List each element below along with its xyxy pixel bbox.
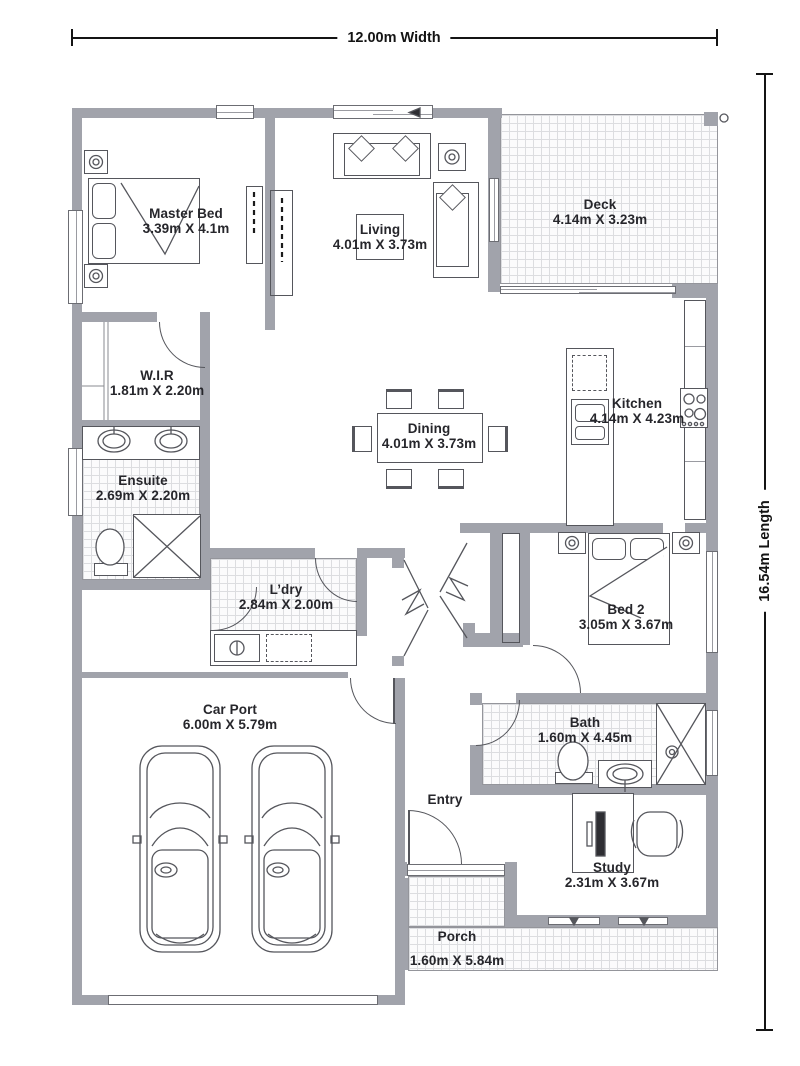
wall [505,915,718,927]
room-name: Living [333,222,427,237]
wall [392,656,404,666]
nightstand [84,264,108,288]
washer-space [266,634,312,662]
room-label-carport: Car Port 6.00m X 5.79m [183,702,277,733]
room-name: Bed 2 [579,602,673,617]
window [216,105,254,119]
wall [400,878,408,970]
shelving [82,322,108,420]
toilet-tank [555,772,593,784]
room-dims: 1.81m X 2.20m [110,383,204,398]
chair [488,426,508,452]
wall [516,693,718,703]
room-label-entry: Entry [427,792,462,807]
nightstand [84,150,108,174]
room-dims: 4.01m X 3.73m [333,237,427,252]
desk-chair-icon [631,812,682,856]
room-label-master-bed: Master Bed 3.39m X 4.1m [143,206,230,237]
wall [395,862,407,876]
nightstand [672,532,700,554]
door-arc [159,322,205,368]
sofa [333,133,431,179]
window [68,448,83,516]
door-leaf [408,810,410,864]
room-dims: 2.31m X 3.67m [565,875,659,890]
door-arc [350,678,396,724]
room-dims: 1.60m X 4.45m [538,730,632,745]
door-leaf [393,678,395,724]
shower [656,703,706,785]
chair [352,426,372,452]
room-label-ensuite: Ensuite 2.69m X 2.20m [96,473,190,504]
sink-bowl [575,426,605,440]
pillow [92,183,116,219]
chair [386,389,412,409]
width-dimension-label: 12.00m Width [337,30,450,46]
room-label-kitchen: Kitchen 4.14m X 4.23m [590,396,684,427]
room-label-dining: Dining 4.01m X 3.73m [382,421,476,452]
cooktop [680,388,708,428]
room-label-living: Living 4.01m X 3.73m [333,222,427,253]
dimension-tick [756,1029,773,1031]
room-dims: 2.84m X 2.00m [239,597,333,612]
vanity [598,760,652,788]
wardrobe [246,186,263,264]
car-icon [245,746,339,952]
room-label-bath: Bath 1.60m X 4.45m [538,715,632,746]
room-name: Entry [427,792,462,807]
appliance-space [572,355,607,391]
wall [520,533,530,645]
room-dims: 6.00m X 5.79m [183,717,277,732]
wall [357,548,405,558]
linen-closet [502,533,520,643]
room-name: Kitchen [590,396,684,411]
room-dims: 2.69m X 2.20m [96,488,190,503]
room-dims: 4.14m X 3.23m [553,212,647,227]
chair [438,469,464,489]
wall [72,580,210,590]
room-dims: 3.39m X 4.1m [143,221,230,236]
room-name: Study [565,860,659,875]
dimension-tick [716,29,718,46]
car-icon [133,746,227,952]
room-label-wir: W.I.R 1.81m X 2.20m [110,368,204,399]
french-doors [402,543,468,656]
dimension-tick [71,29,73,46]
porch-floor-entry [408,876,505,927]
room-name: Ensuite [96,473,190,488]
door-arc [408,810,462,864]
toilet-tank [94,563,128,576]
wall [72,672,348,678]
wall [490,533,502,643]
wall [463,623,475,633]
floor-plan: Master Bed 3.39m X 4.1m Living 4.01m X 3… [0,0,800,1066]
side-table [438,143,466,171]
sliding-window [333,105,433,119]
garage-opening [108,995,378,1005]
room-name: Car Port [183,702,277,717]
nightstand [558,532,586,554]
shower [133,514,201,578]
room-name: L’dry [239,582,333,597]
room-dims: 4.01m X 3.73m [382,436,476,451]
window [618,917,668,925]
room-dims: 1.60m X 5.84m [410,949,504,973]
wall [72,108,502,118]
chair [438,389,464,409]
length-dimension-label: 16.54m Length [757,490,773,612]
room-name: Master Bed [143,206,230,221]
wall [392,558,404,568]
entry-threshold [407,864,505,876]
room-name: Dining [382,421,476,436]
room-dims: 4.14m X 4.23m [590,411,684,426]
room-label-study: Study 2.31m X 3.67m [565,860,659,891]
wardrobe [270,190,293,296]
room-label-deck: Deck 4.14m X 3.23m [553,197,647,228]
room-label-bed2: Bed 2 3.05m X 3.67m [579,602,673,633]
window [489,178,499,242]
window [706,551,718,653]
window [548,917,600,925]
room-name: Porch [410,925,504,949]
room-label-porch: Porch 1.60m X 5.84m [410,925,504,973]
door-arc [533,645,581,693]
wall [357,548,367,636]
deck-corner-detail [720,114,728,122]
window [68,210,83,304]
laundry-tub [214,634,260,662]
room-name: Deck [553,197,647,212]
pillow [92,223,116,259]
pillow [630,538,664,560]
deck-post [704,112,718,126]
sliding-door [500,286,676,294]
wall [82,312,157,322]
room-name: Bath [538,715,632,730]
room-name: W.I.R [110,368,204,383]
chair [386,469,412,489]
dimension-tick [756,73,773,75]
pillow [592,538,626,560]
room-label-laundry: L’dry 2.84m X 2.00m [239,582,333,613]
wall [205,548,315,558]
vanity [82,426,200,460]
room-dims: 3.05m X 3.67m [579,617,673,632]
window [706,710,718,776]
